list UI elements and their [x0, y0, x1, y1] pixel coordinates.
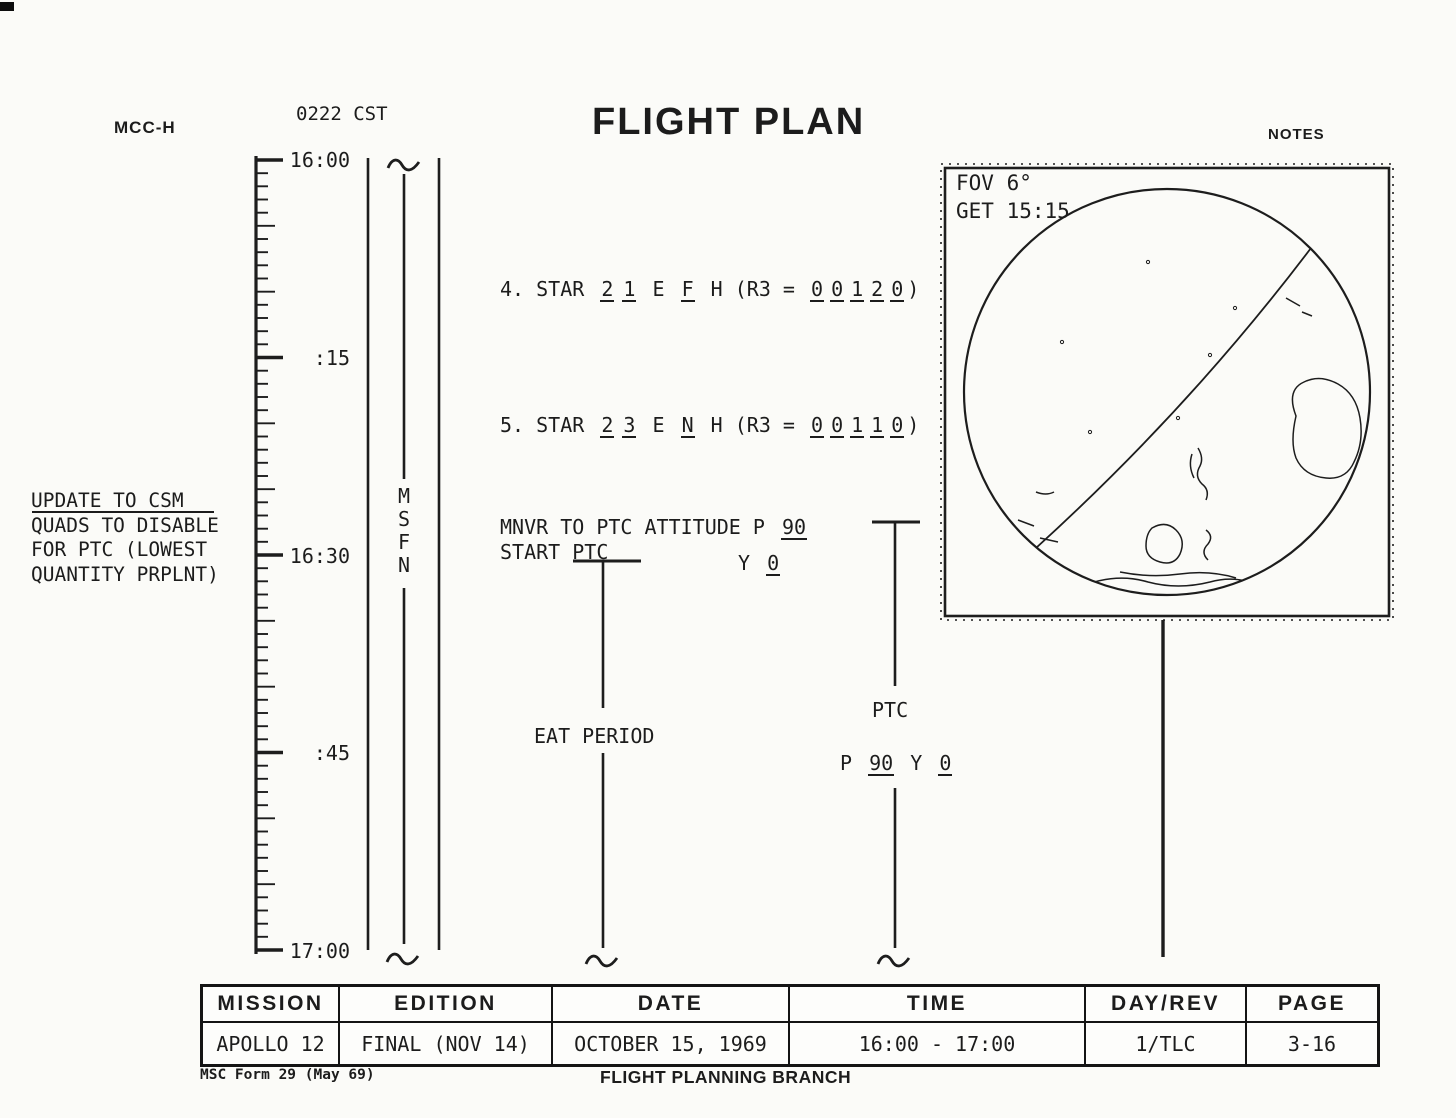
globe-box	[941, 164, 1393, 957]
msfn-label: M S F N	[393, 485, 415, 577]
terminator-line	[1036, 248, 1311, 548]
table-value-time: 16:00 - 17:00	[788, 1023, 1084, 1064]
mnvr-yaw: Y 0	[738, 551, 784, 576]
station-label: MCC-H	[114, 118, 176, 138]
star-check-5: 5. STAR 23 E N H (R3 = 00110)	[500, 413, 919, 438]
earth-globe	[959, 184, 1370, 595]
table-header-dayrev: DAY/REV	[1084, 987, 1245, 1023]
table-header-date: DATE	[551, 987, 788, 1023]
time-label-1645: :45	[270, 741, 350, 765]
ptc-attitude: P 90 Y 0	[840, 751, 956, 776]
table-header-time: TIME	[788, 987, 1084, 1023]
eat-period-label: EAT PERIOD	[534, 724, 654, 748]
mnvr-to-ptc-line: MNVR TO PTC ATTITUDE P 90	[500, 515, 811, 540]
margin-note: UPDATE TO CSM QUADS TO DISABLE FOR PTC (…	[31, 489, 219, 587]
continuation-squiggle-top	[388, 160, 419, 170]
branch-label: FLIGHT PLANNING BRANCH	[600, 1067, 851, 1088]
time-label-1600: 16:00	[270, 148, 350, 172]
form-number: MSC Form 29 (May 69)	[200, 1067, 375, 1083]
table-header-mission: MISSION	[203, 987, 338, 1023]
fov-label: FOV 6°	[956, 171, 1032, 195]
notes-label: NOTES	[1268, 126, 1325, 143]
table-value-date: OCTOBER 15, 1969	[551, 1023, 788, 1064]
get-label: GET 15:15	[956, 199, 1070, 223]
cst-time: 0222 CST	[296, 103, 388, 125]
time-label-1700: 17:00	[270, 939, 350, 963]
margin-note-underline	[32, 511, 214, 513]
coastlines	[970, 298, 1361, 594]
table-header-page: PAGE	[1245, 987, 1377, 1023]
table-value-edition: FINAL (NOV 14)	[338, 1023, 551, 1064]
page-title: FLIGHT PLAN	[592, 101, 865, 144]
table-value-page: 3-16	[1245, 1023, 1377, 1064]
ptc-label: PTC	[872, 698, 908, 722]
time-label-1630: 16:30	[270, 544, 350, 568]
ptc-track	[872, 522, 920, 966]
start-ptc-label: START PTC	[500, 540, 608, 564]
continuation-squiggle-bottom	[387, 954, 418, 964]
globe-specks	[1060, 260, 1236, 433]
mission-info-table: MISSION EDITION DATE TIME DAY/REV PAGE A…	[200, 984, 1380, 1067]
table-value-dayrev: 1/TLC	[1084, 1023, 1245, 1064]
table-header-edition: EDITION	[338, 987, 551, 1023]
star-check-4: 4. STAR 21 E F H (R3 = 00120)	[500, 277, 919, 302]
night-side-hatching	[959, 184, 1311, 548]
flight-plan-page: { "header": { "station": "MCC-H", "cst_t…	[0, 0, 1456, 1118]
eat-period-track	[573, 561, 641, 966]
time-label-1615: :15	[270, 346, 350, 370]
table-value-mission: APOLLO 12	[203, 1023, 338, 1064]
